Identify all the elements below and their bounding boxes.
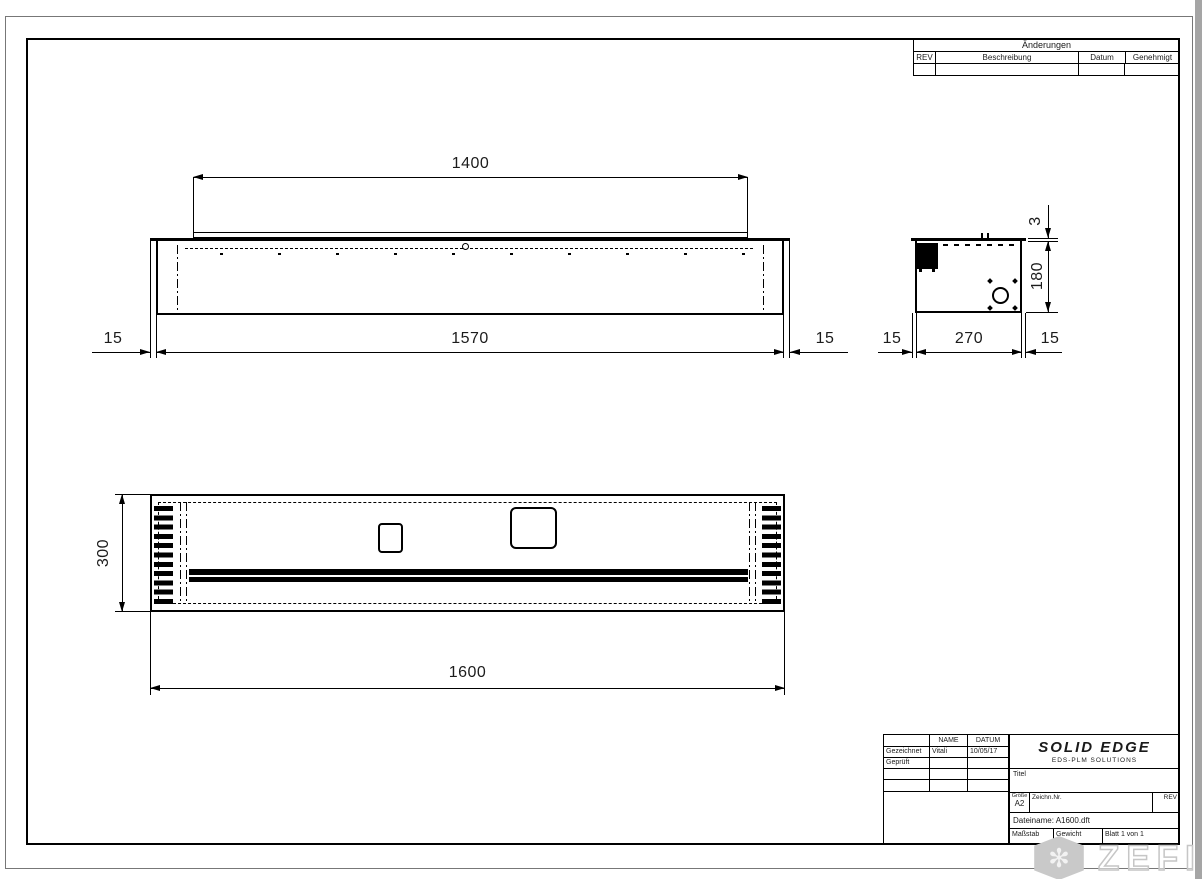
tick-marks bbox=[220, 253, 745, 255]
extension-line bbox=[1028, 241, 1058, 242]
dim-side-plate: 3 bbox=[1027, 203, 1045, 239]
dimension-line bbox=[122, 494, 123, 612]
arrow-left-icon bbox=[150, 685, 160, 691]
revision-table-title: Änderungen bbox=[914, 39, 1179, 52]
stud-mark bbox=[981, 233, 983, 238]
revision-table: Änderungen REV Beschreibung Datum Genehm… bbox=[913, 38, 1180, 76]
signature-table: NAME DATUM Gezeichnet Vitali 10/05/17 Ge… bbox=[883, 734, 1009, 792]
arrow-right-icon bbox=[775, 685, 785, 691]
revision-col-rev: REV bbox=[914, 52, 936, 64]
side-component-block bbox=[917, 243, 938, 269]
drawn-label: Gezeichnet bbox=[884, 747, 929, 758]
burner-slot-gap bbox=[189, 575, 748, 577]
empty-cell bbox=[968, 769, 1008, 780]
component-leg bbox=[932, 269, 935, 272]
size-cell: Größe A2 bbox=[1010, 793, 1030, 813]
empty-cell bbox=[968, 758, 1008, 769]
dimension-line bbox=[193, 177, 748, 178]
arrow-left-icon bbox=[156, 349, 166, 355]
dim-front-body: 1570 bbox=[156, 330, 784, 348]
arrow-right-icon bbox=[902, 349, 912, 355]
dim-side-flange-left: 15 bbox=[872, 330, 912, 348]
empty-cell bbox=[884, 769, 929, 780]
arrow-left-icon bbox=[1026, 349, 1036, 355]
centerline bbox=[177, 245, 178, 313]
sheet-label: Blatt 1 von 1 bbox=[1103, 829, 1179, 844]
center-mark bbox=[462, 243, 469, 250]
arrow-down-icon bbox=[1045, 228, 1051, 238]
revision-col-description: Beschreibung bbox=[936, 52, 1079, 64]
arrow-left-icon bbox=[193, 174, 203, 180]
centerline bbox=[749, 502, 750, 604]
arrow-up-icon bbox=[119, 494, 125, 504]
drawing-no-label: Zeichn.Nr. bbox=[1030, 793, 1153, 813]
arrow-right-icon bbox=[738, 174, 748, 180]
arrow-down-icon bbox=[119, 602, 125, 612]
fan-hole-circle bbox=[992, 287, 1009, 304]
centerline bbox=[755, 502, 756, 604]
dim-top-length: 1600 bbox=[150, 664, 785, 682]
title-block-empty-area bbox=[883, 791, 1009, 845]
hidden-line bbox=[185, 248, 753, 249]
drawn-name: Vitali bbox=[929, 747, 968, 758]
revision-empty-cell bbox=[1078, 64, 1125, 75]
drawing-sheet: Änderungen REV Beschreibung Datum Genehm… bbox=[0, 0, 1202, 879]
empty-cell bbox=[929, 780, 968, 791]
empty-cell bbox=[929, 769, 968, 780]
filename: Dateiname: A1600.dft bbox=[1010, 813, 1179, 829]
component-leg bbox=[919, 269, 922, 272]
vent-slots-right bbox=[762, 506, 781, 607]
dimension-line bbox=[916, 352, 1022, 353]
dim-front-lip: 1400 bbox=[193, 155, 748, 173]
page-edge-strip bbox=[1195, 0, 1202, 879]
centerline bbox=[763, 245, 764, 313]
dim-side-height: 180 bbox=[1029, 246, 1047, 306]
extension-line bbox=[784, 612, 785, 695]
drawn-date: 10/05/17 bbox=[968, 747, 1008, 758]
extension-line bbox=[747, 177, 748, 232]
dimension-line bbox=[156, 352, 784, 353]
dimension-line bbox=[150, 688, 785, 689]
stud-mark bbox=[987, 233, 989, 238]
vent-slots-left bbox=[154, 506, 173, 607]
dim-side-flange-right: 15 bbox=[1030, 330, 1070, 348]
extension-line bbox=[912, 313, 913, 358]
small-opening bbox=[378, 523, 403, 553]
rev-label: REV bbox=[1153, 793, 1179, 813]
extension-line bbox=[150, 241, 151, 358]
col-name-header: NAME bbox=[929, 735, 968, 747]
dim-top-depth: 300 bbox=[95, 523, 113, 583]
checked-label: Geprüft bbox=[884, 758, 929, 769]
dim-side-width: 270 bbox=[916, 330, 1022, 348]
arrow-right-icon bbox=[140, 349, 150, 355]
extension-line bbox=[193, 177, 194, 232]
weight-label: Gewicht bbox=[1054, 829, 1103, 844]
dim-front-flange-right: 15 bbox=[800, 330, 850, 348]
title-block-main: SOLID EDGE EDS-PLM SOLUTIONS Titel Größe… bbox=[1009, 734, 1180, 845]
centerline bbox=[180, 502, 181, 604]
logo-subtitle: EDS-PLM SOLUTIONS bbox=[1010, 757, 1179, 764]
revision-col-date: Datum bbox=[1079, 52, 1126, 64]
arrow-right-icon bbox=[774, 349, 784, 355]
arrow-right-icon bbox=[1012, 349, 1022, 355]
arrow-left-icon bbox=[790, 349, 800, 355]
extension-line bbox=[1026, 312, 1058, 313]
empty-cell bbox=[929, 758, 968, 769]
size-value: A2 bbox=[1010, 799, 1029, 808]
hidden-inner-outline bbox=[158, 502, 777, 604]
empty-cell bbox=[884, 735, 929, 747]
logo-area: SOLID EDGE EDS-PLM SOLUTIONS bbox=[1010, 735, 1179, 769]
extension-line bbox=[150, 612, 151, 695]
col-date-header: DATUM bbox=[968, 735, 1008, 747]
arrow-left-icon bbox=[916, 349, 926, 355]
revision-col-approved: Genehmigt bbox=[1126, 52, 1179, 64]
dim-front-flange-left: 15 bbox=[88, 330, 138, 348]
revision-empty-cell bbox=[914, 64, 936, 75]
scale-label: Maßstab bbox=[1010, 829, 1054, 844]
title-label: Titel bbox=[1010, 769, 1179, 793]
centerline bbox=[186, 502, 187, 604]
solid-edge-logo: SOLID EDGE bbox=[1010, 739, 1179, 756]
large-opening bbox=[510, 507, 557, 549]
extension-line bbox=[789, 241, 790, 358]
